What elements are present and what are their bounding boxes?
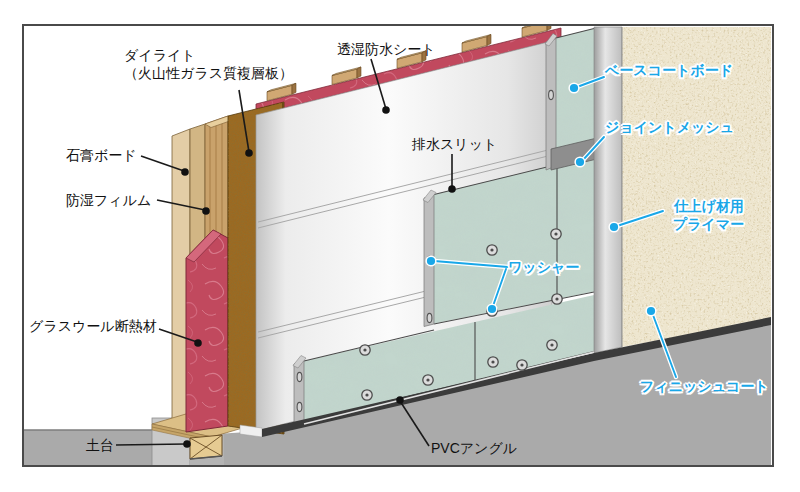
label-washer: ワッシャー <box>508 258 579 276</box>
label-pvc-angle: PVCアングル <box>431 439 517 457</box>
label-joint-mesh: ジョイントメッシュ <box>605 118 734 136</box>
label-dailite: ダイライト （火山性ガラス質複層板） <box>124 46 293 82</box>
label-drainage-slit: 排水スリット <box>412 135 497 153</box>
washer <box>488 357 498 367</box>
label-vapor-film: 防湿フィルム <box>66 191 151 209</box>
washer <box>551 229 561 239</box>
washer <box>552 294 562 304</box>
washer <box>547 340 557 350</box>
washer <box>423 375 433 385</box>
glass-wool-insulation <box>186 230 228 432</box>
label-dailite-line2: （火山性ガラス質複層板） <box>124 64 293 82</box>
washer <box>517 360 527 370</box>
label-sill: 土台 <box>86 436 114 454</box>
sill-beam <box>190 435 222 459</box>
label-primer-line2: プライマー <box>660 215 744 233</box>
washer <box>362 390 372 400</box>
label-dailite-line1: ダイライト <box>124 46 293 64</box>
washer <box>487 245 497 255</box>
label-basecoat-board: ベースコートボード <box>605 61 733 79</box>
label-gypsum-board: 石膏ボード <box>66 146 137 164</box>
label-waterproof-sheet: 透湿防水シート <box>337 40 436 58</box>
wall-section-diagram: ダイライト （火山性ガラス質複層板） 透湿防水シート 石膏ボード 防湿フィルム … <box>0 0 800 492</box>
label-finish-coat: フィニッシュコート <box>640 377 769 395</box>
label-primer: 仕上げ材用 プライマー <box>660 197 744 233</box>
washer <box>360 345 370 355</box>
label-primer-line1: 仕上げ材用 <box>660 197 744 215</box>
label-glass-wool: グラスウール断熱材 <box>29 317 157 335</box>
